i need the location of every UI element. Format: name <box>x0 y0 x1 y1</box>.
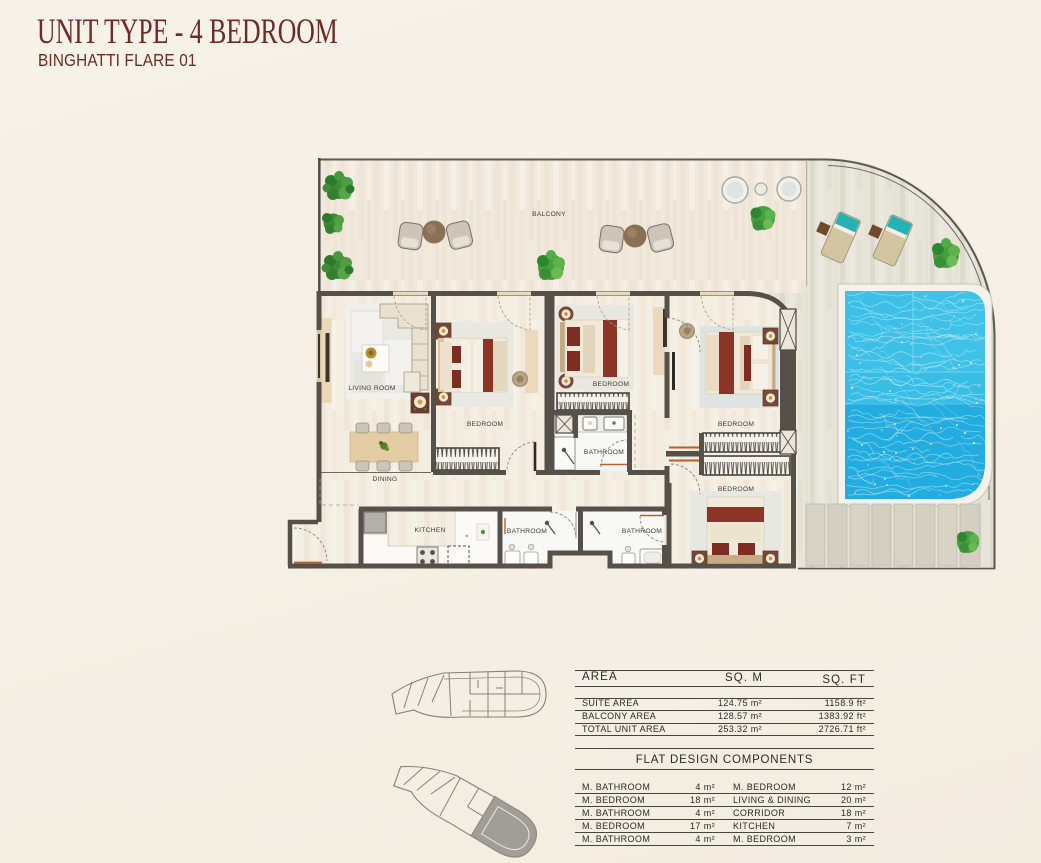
svg-text:DINING: DINING <box>373 476 398 483</box>
svg-text:BEDROOM: BEDROOM <box>593 381 629 388</box>
svg-text:BEDROOM: BEDROOM <box>718 421 754 428</box>
svg-text:KITCHEN: KITCHEN <box>414 527 445 534</box>
svg-text:BATHROOM: BATHROOM <box>622 528 662 535</box>
svg-text:LIVING ROOM: LIVING ROOM <box>348 385 396 392</box>
svg-text:BEDROOM: BEDROOM <box>718 486 754 493</box>
svg-text:BATHROOM: BATHROOM <box>584 449 624 456</box>
svg-text:BATHROOM: BATHROOM <box>507 528 547 535</box>
svg-text:BALCONY: BALCONY <box>532 211 566 218</box>
svg-text:BEDROOM: BEDROOM <box>467 421 503 428</box>
